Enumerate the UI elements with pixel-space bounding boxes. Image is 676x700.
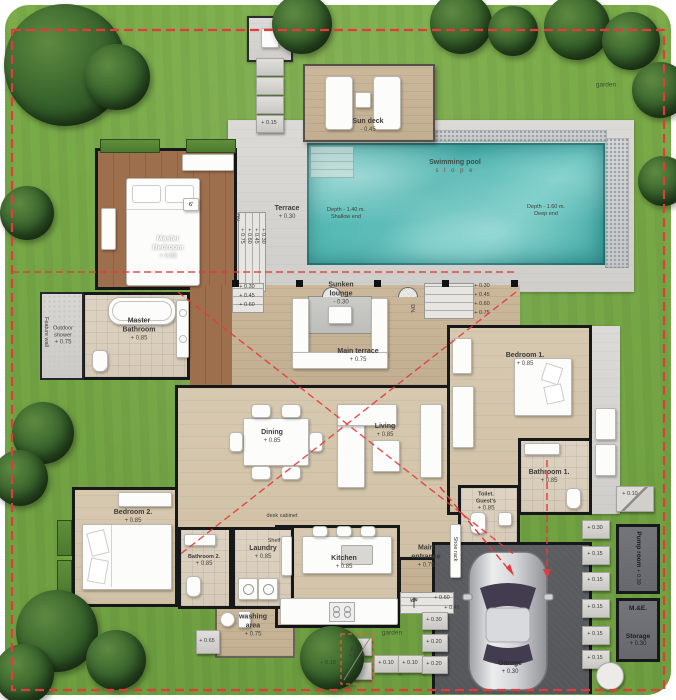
label-living: Living+ 0.85 (375, 423, 396, 439)
terrace-steps-right (424, 283, 474, 319)
level-entrance-col: + 0.20 (426, 661, 441, 667)
label-bedroom1: Bedroom 1.+ 0.85 (506, 352, 545, 368)
bed-size-label: 6' (189, 202, 193, 208)
tree (84, 44, 150, 110)
outdoor-washer (220, 612, 235, 627)
master-steps (238, 212, 266, 292)
pool-pebble-edge-right (605, 138, 629, 268)
level-master-step: + 0.75 (239, 228, 245, 243)
dining-chair (251, 404, 271, 418)
level-master-step: + 0.60 (246, 228, 252, 243)
level-terrace-left: + 0.45 (239, 293, 254, 299)
column (442, 280, 449, 287)
label-pump-room: Pump room + 0.30 (634, 531, 642, 584)
tree (602, 12, 660, 70)
label-bathroom1: Bathroom 1.+ 0.85 (529, 469, 570, 485)
level-right-col: + 0.15 (587, 604, 602, 610)
label-feature-wall: Feature wall (43, 317, 49, 347)
label-washing-area: washingarea + 0.75 (239, 614, 267, 639)
column (511, 280, 518, 287)
label-garage: Garage+ 0.30 (498, 660, 522, 676)
label-bedroom2: Bedroom 2.+ 0.85 (114, 509, 153, 525)
tree (86, 630, 146, 690)
vanity2 (184, 534, 216, 546)
toilet2 (186, 576, 201, 597)
wardrobe1b (452, 386, 474, 448)
pool-steps (310, 146, 354, 178)
level-master-step: + 0.30 (260, 228, 266, 243)
level-terrace-right: + 0.60 (474, 301, 489, 307)
level-right-col: + 0.15 (587, 655, 602, 661)
label-desk-cabinet: desk cabinet (267, 513, 298, 519)
toilet-master (92, 350, 108, 372)
level-washing-stone: + 0.65 (199, 638, 214, 644)
lounge-sofa-left (292, 298, 309, 356)
level-right-col: + 0.15 (587, 577, 602, 583)
laundry-shelf (281, 536, 292, 576)
label-me: M.&E. (629, 605, 647, 613)
level-right-col: + 0.15 (587, 551, 602, 557)
dining-chair (281, 404, 301, 418)
label-dn-terrace: DN. (409, 304, 415, 313)
label-shoe-rack: Shoe rack (452, 537, 458, 562)
label-main-terrace: Main terrace+ 0.75 (337, 348, 378, 364)
level-terrace-left: + 0.60 (239, 302, 254, 308)
label-storage: Storage+ 0.30 (626, 633, 650, 649)
label-garden-bottom: garden (382, 630, 402, 637)
label-kitchen: Kitchen+ 0.85 (331, 555, 357, 571)
level-right-col: + 0.15 (587, 631, 602, 637)
level-entrance-step: + 0.60 (434, 595, 449, 601)
dining-chair (309, 432, 323, 452)
floor-plan: 6' (0, 0, 676, 700)
wood-deck-link (190, 285, 232, 385)
level-bottom-row: + 0.10 (320, 660, 335, 666)
master-dresser (101, 208, 116, 250)
bar-stool (360, 526, 376, 537)
armchair (372, 440, 400, 472)
dryer (258, 578, 278, 600)
label-entry: Entry+ 0.10 (349, 647, 364, 659)
bar-stool (312, 526, 328, 537)
planter (57, 520, 72, 556)
label-sun-deck: Sun deck- 0.45 (352, 118, 383, 134)
master-bed (126, 178, 200, 286)
label-terrace: Terrace+ 0.30 (275, 205, 300, 221)
stepping-stone (256, 58, 284, 76)
basin-guest (498, 512, 512, 526)
level-bottom-row: + 0.10 (378, 660, 393, 666)
label-toilet-guests: Toilet.Guest's + 0.85 (476, 491, 496, 512)
vanity1 (524, 443, 560, 455)
level-terrace-right: + 0.45 (474, 292, 489, 298)
toilet1 (566, 488, 581, 509)
label-dn-master: DN. (234, 213, 240, 222)
dining-chair (251, 466, 271, 480)
level-stone-right-top: + 0.10 (622, 491, 637, 497)
bed2 (82, 524, 172, 590)
label-garden-top: garden (596, 82, 616, 89)
double-vanity (176, 300, 189, 358)
level-master-step: + 0.45 (253, 228, 259, 243)
level-terrace-left: + 0.30 (239, 284, 254, 290)
tree (488, 6, 538, 56)
label-pool-shallow: Depth - 1.40 m.Shallow end (327, 207, 365, 221)
round-stone (596, 662, 624, 690)
level-terrace-right: + 0.30 (474, 283, 489, 289)
bed-size-tag: 6' (183, 198, 199, 211)
washer (238, 578, 258, 600)
planter (186, 139, 236, 153)
stepping-stone (256, 96, 284, 114)
label-pool: Swimming pool s l o p e (429, 159, 481, 175)
column (232, 280, 239, 287)
kitchen-counter (280, 598, 398, 625)
label-laundry: Laundry+ 0.85 (249, 545, 277, 561)
column (296, 280, 303, 287)
label-sunken-lounge: Sunkenlounge - 0.30 (328, 282, 353, 307)
stepping-stone-diagonal (616, 486, 654, 512)
level-entrance-col: + 0.20 (426, 639, 441, 645)
label-main-entrance: Mainentrance + 0.75 (411, 545, 440, 570)
master-closet (182, 154, 234, 171)
tv-cabinet (420, 404, 442, 478)
level-terrace-right: + 0.75 (474, 310, 489, 316)
planter (100, 139, 160, 153)
label-bathroom2: Bathroom 2.+ 0.85 (188, 554, 220, 568)
pool-pebble-edge-top (435, 130, 607, 142)
toilet-guest (470, 512, 486, 534)
label-outdoor-shower: Outdoorshower + 0.75 (53, 325, 73, 346)
level-right-col: + 0.30 (587, 525, 602, 531)
level-entrance-step: + 0.45 (444, 605, 459, 611)
level-entrance-col: + 0.30 (426, 617, 441, 623)
label-pool-deep: Depth - 1.60 m.Deep end (527, 204, 565, 218)
bar-stool (336, 526, 352, 537)
wardrobe2 (118, 492, 172, 507)
column (374, 280, 381, 287)
level-bottom-row: + 0.10 (402, 660, 417, 666)
ac-unit (595, 444, 616, 476)
label-master-bedroom: MasterBedroom + 0.85 (153, 236, 184, 261)
wardrobe1 (452, 338, 472, 374)
dining-chair (229, 432, 243, 452)
tree (0, 186, 54, 240)
label-dining: Dining+ 0.85 (261, 429, 283, 445)
lounge-table (328, 306, 352, 324)
ac-unit (595, 408, 616, 440)
label-shelf: Shelf (268, 538, 281, 544)
label-master-bathroom: MasterBathroom + 0.85 (122, 318, 155, 343)
dining-chair (281, 466, 301, 480)
stepping-stone (256, 77, 284, 95)
level-path-stone: + 0.15 (261, 120, 276, 126)
label-up: UP (410, 598, 418, 604)
